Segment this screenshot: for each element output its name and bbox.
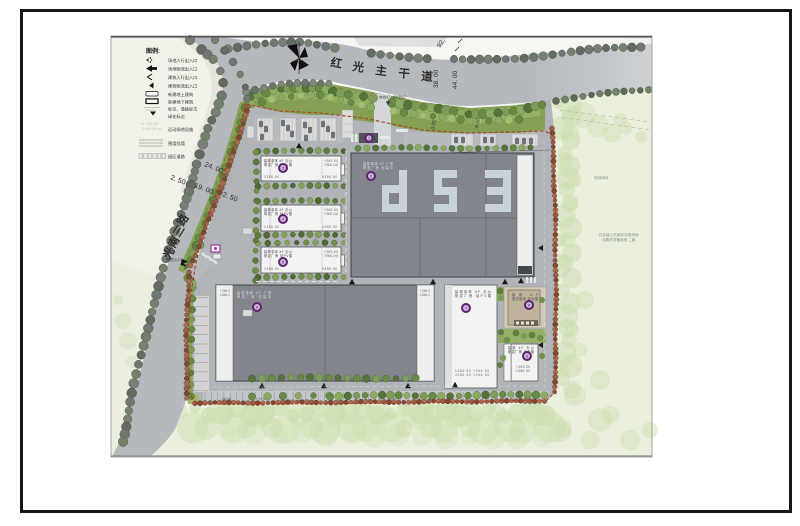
svg-text:2: 2 [370, 175, 372, 179]
svg-text:园区道路: 园区道路 [168, 153, 186, 160]
svg-text:1+52.30 m: 1+52.30 m [142, 126, 162, 131]
svg-text:社区级公共服务设施用地: 社区级公共服务设施用地 [599, 232, 639, 237]
svg-text:1386.50: 1386.50 [264, 225, 279, 229]
svg-text:远期开发备用地 二期: 远期开发备用地 二期 [602, 237, 636, 242]
svg-text:建筑物流出入口: 建筑物流出入口 [168, 82, 197, 89]
svg-text:场地物流出入口: 场地物流出入口 [168, 65, 197, 72]
svg-text:3: 3 [282, 167, 284, 171]
svg-text:新建地下建筑: 新建地下建筑 [168, 98, 194, 105]
svg-text:5: 5 [282, 261, 284, 265]
svg-text:干: 干 [398, 67, 411, 81]
svg-text:1: 1 [368, 137, 370, 141]
svg-text:44. 00: 44. 00 [452, 71, 459, 89]
svg-text:电房入口: 电房入口 [166, 256, 182, 262]
svg-text:绿化标志: 绿化标志 [168, 113, 185, 120]
svg-text:4386.50: 4386.50 [322, 225, 337, 229]
svg-text:研发厂房 硅PV楼: 研发厂房 硅PV楼 [264, 253, 293, 258]
svg-text:4386.50 1386.50: 4386.50 1386.50 [455, 373, 489, 377]
svg-text:1386.0: 1386.0 [220, 293, 230, 297]
svg-text:研发厂房 在建中: 研发厂房 在建中 [237, 294, 271, 299]
svg-text:规划绿地: 规划绿地 [594, 175, 609, 180]
svg-text:4: 4 [282, 218, 284, 222]
svg-text:1386.50: 1386.50 [264, 175, 279, 179]
svg-text:4386.50: 4386.50 [322, 175, 337, 179]
svg-text:标识、道路标志: 标识、道路标志 [168, 105, 197, 112]
svg-text:1386.0: 1386.0 [420, 293, 430, 297]
svg-text:新建地上建筑: 新建地上建筑 [168, 91, 194, 98]
svg-text:7968.2㎡: 7968.2㎡ [324, 253, 339, 258]
svg-text:7968.2㎡: 7968.2㎡ [324, 162, 339, 167]
svg-text:7: 7 [465, 307, 467, 311]
svg-text:8: 8 [528, 304, 530, 308]
svg-text:建筑人行出入口: 建筑人行出入口 [168, 74, 197, 81]
svg-text:办公出入口→一期人行出入口: 办公出入口→一期人行出入口 [379, 95, 406, 99]
svg-text:研发厂房 在建中: 研发厂房 在建中 [363, 165, 393, 170]
svg-text:7968.2㎡: 7968.2㎡ [324, 211, 339, 216]
svg-text:38. 00: 38. 00 [433, 70, 440, 88]
svg-text:食堂宿舍 综合楼: 食堂宿舍 综合楼 [512, 296, 539, 301]
svg-text:1386.50: 1386.50 [516, 369, 530, 373]
svg-text:研发厂房 硅PV楼: 研发厂房 硅PV楼 [455, 293, 492, 298]
svg-text:运动场地设施: 运动场地设施 [168, 126, 194, 133]
svg-text:道: 道 [421, 69, 434, 84]
svg-text:研发厂房 硅PV楼: 研发厂房 硅PV楼 [264, 211, 293, 216]
svg-text:9: 9 [526, 355, 528, 359]
svg-text:主: 主 [375, 63, 389, 78]
svg-text:6: 6 [256, 306, 258, 310]
svg-text:4386.50: 4386.50 [322, 267, 337, 271]
svg-text:围墙挡墙: 围墙挡墙 [168, 140, 185, 147]
svg-text:场地人行出入口: 场地人行出入口 [168, 57, 197, 64]
svg-text:图例:: 图例: [146, 47, 160, 55]
svg-text:1386.50: 1386.50 [264, 267, 279, 271]
